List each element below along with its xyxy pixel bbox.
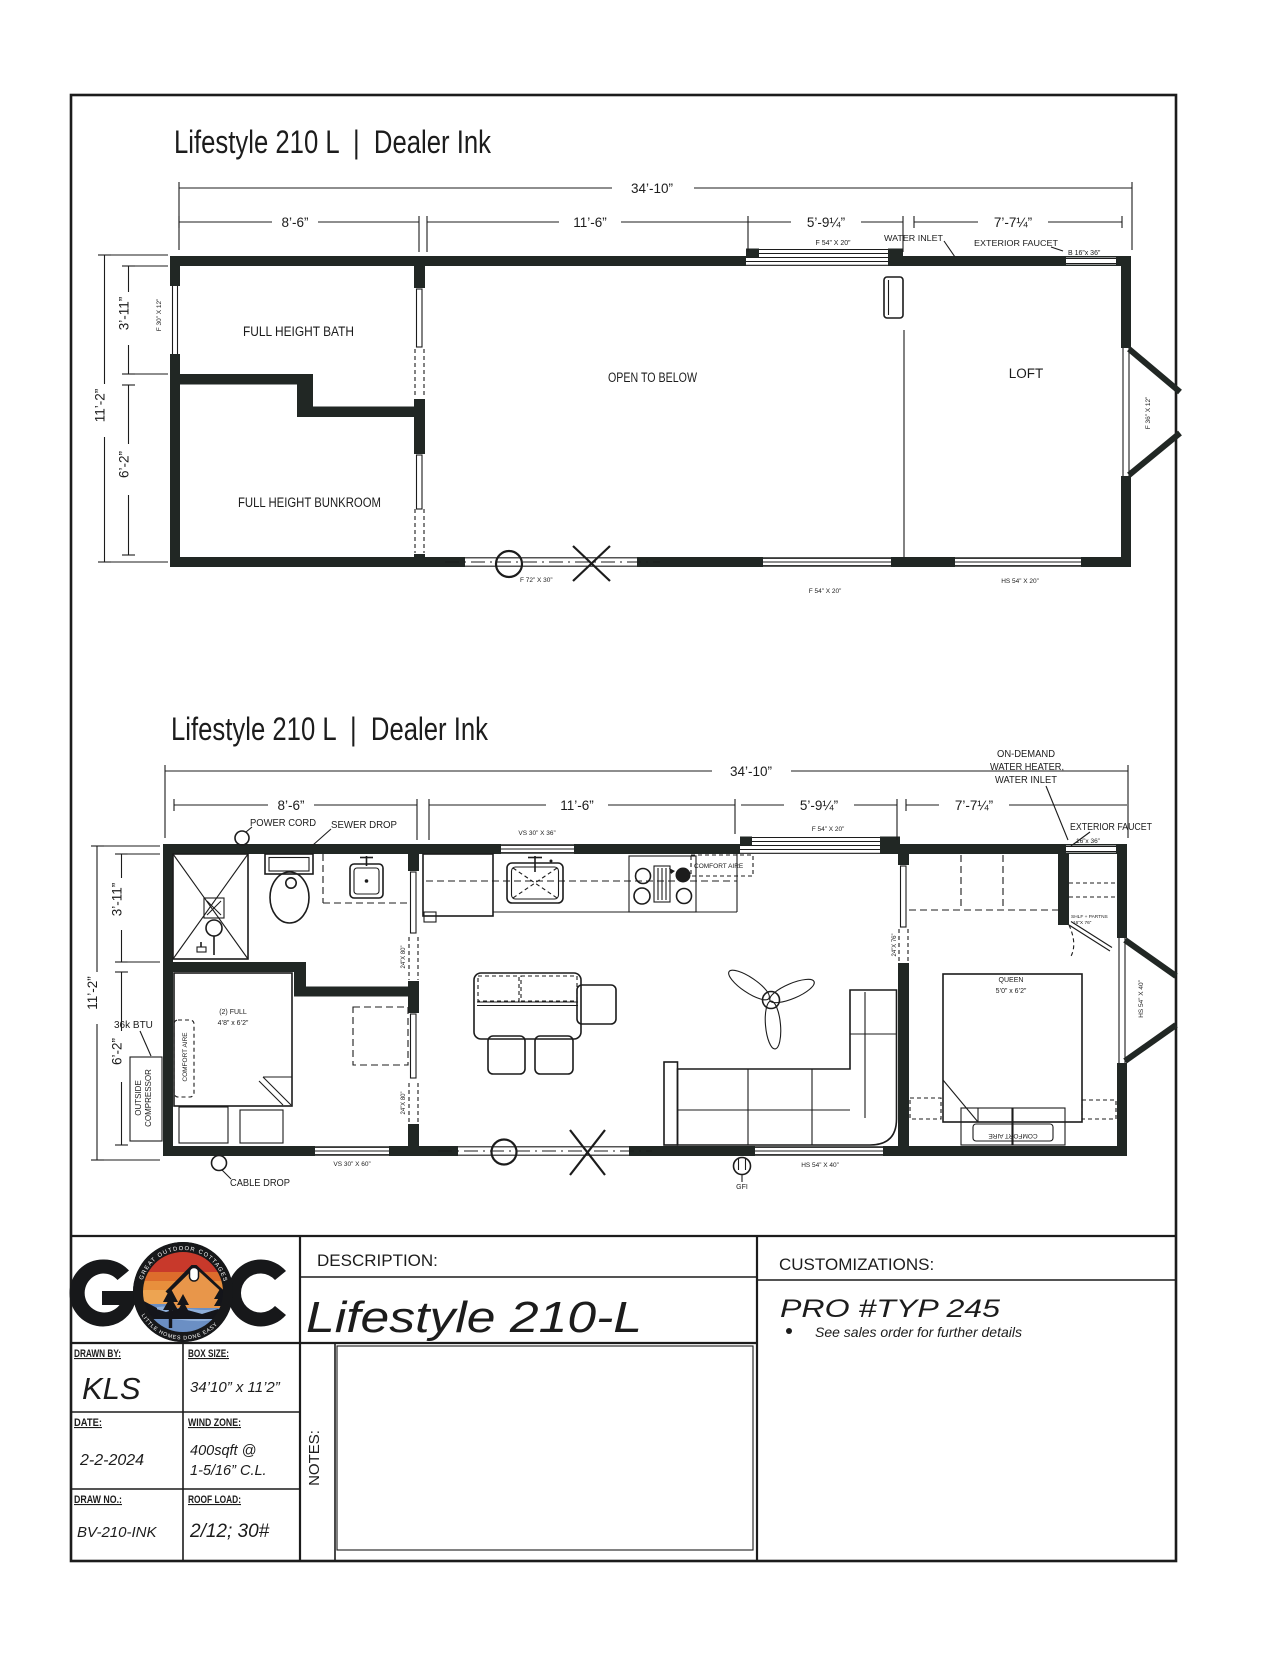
svg-text:4’8” x 6’2”: 4’8” x 6’2” (218, 1020, 249, 1027)
svg-text:6’-2”: 6’-2” (110, 1038, 125, 1065)
svg-text:POWER CORD: POWER CORD (250, 818, 316, 829)
svg-text:FULL HEIGHT BUNKROOM: FULL HEIGHT BUNKROOM (238, 495, 381, 510)
svg-text:HS 54” X 20”: HS 54” X 20” (1001, 578, 1039, 585)
svg-text:2-2-2024: 2-2-2024 (79, 1452, 144, 1469)
svg-text:EXTERIOR FAUCET: EXTERIOR FAUCET (974, 239, 1058, 248)
svg-text:F 30” X 12”: F 30” X 12” (156, 299, 163, 332)
svg-text:34’-10”: 34’-10” (730, 764, 772, 779)
svg-text:BV-210-INK: BV-210-INK (77, 1524, 157, 1541)
svg-text:F 54” X 20”: F 54” X 20” (812, 826, 845, 833)
svg-text:HS 54” X 40”: HS 54” X 40” (801, 1162, 839, 1169)
svg-text:CUSTOMIZATIONS:: CUSTOMIZATIONS: (779, 1255, 934, 1274)
svg-text:(2) FULL: (2) FULL (219, 1009, 247, 1016)
svg-text:WIND ZONE:: WIND ZONE: (188, 1417, 241, 1429)
svg-text:DRAWN BY:: DRAWN BY: (74, 1348, 121, 1360)
svg-text:6’-2”: 6’-2” (117, 451, 132, 478)
svg-text:11’-2”: 11’-2” (93, 389, 108, 423)
svg-text:GFI: GFI (736, 1184, 748, 1191)
svg-text:Lifestyle 210-L: Lifestyle 210-L (306, 1293, 642, 1342)
svg-text:WATER INLET: WATER INLET (995, 775, 1057, 786)
svg-text:F 72” X 30”: F 72” X 30” (520, 577, 553, 584)
svg-text:DRAW NO.:: DRAW NO.: (74, 1494, 122, 1506)
svg-text:34’10” x 11’2”: 34’10” x 11’2” (190, 1379, 281, 1396)
svg-text:CABLE DROP: CABLE DROP (230, 1178, 290, 1189)
svg-text:COMFORT AIRE: COMFORT AIRE (988, 1132, 1038, 1139)
svg-text:BOX SIZE:: BOX SIZE: (188, 1348, 229, 1360)
svg-text:OPEN TO BELOW: OPEN TO BELOW (608, 370, 697, 385)
svg-text:FULL HEIGHT BATH: FULL HEIGHT BATH (243, 324, 354, 339)
svg-text:ON-DEMAND: ON-DEMAND (997, 749, 1055, 760)
svg-text:F 54” X 20”: F 54” X 20” (815, 240, 851, 247)
svg-text:1-5/16” C.L.: 1-5/16” C.L. (190, 1463, 267, 1479)
svg-text:2/12; 30#: 2/12; 30# (189, 1521, 270, 1542)
svg-text:EXTERIOR FAUCET: EXTERIOR FAUCET (1070, 822, 1152, 833)
svg-text:7’-7¼”: 7’-7¼” (955, 798, 993, 813)
svg-text:QUEEN: QUEEN (999, 977, 1024, 984)
svg-text:WATER INLET: WATER INLET (884, 234, 943, 243)
svg-text:VS 30” X 60”: VS 30” X 60” (333, 1161, 370, 1168)
svg-text:7’-7¼”: 7’-7¼” (994, 215, 1032, 230)
svg-text:LOFT: LOFT (1009, 366, 1044, 381)
svg-text:11’-6”: 11’-6” (573, 215, 607, 230)
svg-text:8’-6”: 8’-6” (281, 215, 308, 230)
svg-text:24”X 80”: 24”X 80” (401, 1091, 407, 1114)
svg-text:F 54” X 20”: F 54” X 20” (809, 588, 842, 595)
svg-text:11’-6”: 11’-6” (560, 798, 594, 813)
svg-text:ROOF LOAD:: ROOF LOAD: (188, 1494, 241, 1506)
svg-text:DATE:: DATE: (74, 1417, 102, 1429)
svg-text:PRO #TYP 245: PRO #TYP 245 (780, 1295, 1000, 1323)
svg-text:DESCRIPTION:: DESCRIPTION: (317, 1251, 438, 1270)
svg-text:HS 54” X 40”: HS 54” X 40” (1138, 980, 1145, 1018)
svg-text:See sales order for further de: See sales order for further details (815, 1324, 1022, 1340)
svg-text:5’0” x 6’2”: 5’0” x 6’2” (996, 988, 1027, 995)
svg-text:VS 30” X 36”: VS 30” X 36” (518, 830, 555, 837)
svg-text:Lifestyle 210 L | Dealer Ink: Lifestyle 210 L | Dealer Ink (174, 124, 492, 160)
svg-text:KLS: KLS (82, 1371, 141, 1406)
svg-text:24”X 76”: 24”X 76” (892, 933, 898, 956)
svg-text:34’-10”: 34’-10” (631, 181, 673, 196)
svg-text:400sqft @: 400sqft @ (190, 1443, 256, 1459)
svg-text:F 36” X 12”: F 36” X 12” (1145, 397, 1152, 430)
svg-text:3’-11”: 3’-11” (110, 883, 125, 917)
svg-text:36k BTU: 36k BTU (114, 1020, 153, 1031)
svg-text:SEWER DROP: SEWER DROP (331, 820, 397, 831)
svg-text:11’-2”: 11’-2” (85, 976, 100, 1010)
svg-text:24”X 80”: 24”X 80” (401, 945, 407, 968)
svg-text:8’-6”: 8’-6” (277, 798, 304, 813)
svg-text:COMFORT AIRE: COMFORT AIRE (694, 863, 744, 870)
svg-text:B 16”x 36”: B 16”x 36” (1068, 250, 1101, 257)
svg-text:3’-11”: 3’-11” (117, 297, 132, 331)
svg-text:COMFORT AIRE: COMFORT AIRE (182, 1032, 189, 1082)
svg-text:Lifestyle 210 L | Dealer Ink: Lifestyle 210 L | Dealer Ink (171, 711, 489, 747)
svg-text:COMPRESSOR: COMPRESSOR (144, 1069, 153, 1127)
svg-text:SHLF + PARTNS: SHLF + PARTNS (1071, 914, 1108, 920)
svg-text:NOTES:: NOTES: (306, 1430, 323, 1486)
svg-text:5’-9¼”: 5’-9¼” (800, 798, 838, 813)
svg-text:5’-9¼”: 5’-9¼” (807, 215, 845, 230)
svg-text:OUTSIDE: OUTSIDE (134, 1080, 143, 1116)
svg-text:16”x 36”: 16”x 36” (1076, 838, 1100, 845)
